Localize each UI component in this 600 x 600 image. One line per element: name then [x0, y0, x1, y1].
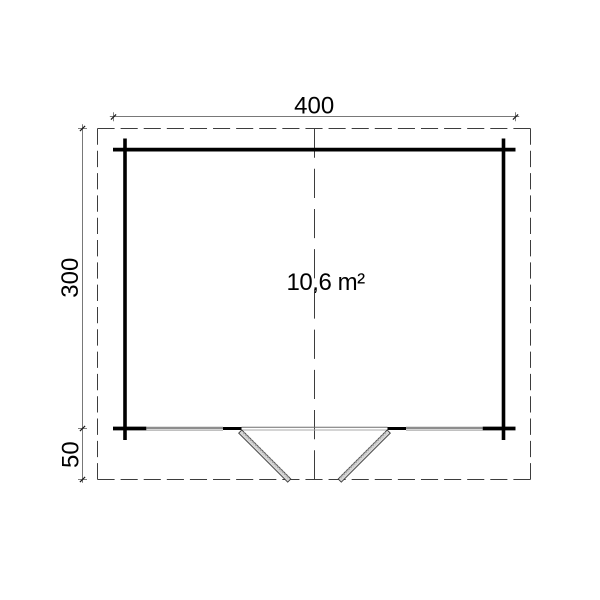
- svg-text:400: 400: [294, 93, 334, 120]
- svg-text:300: 300: [57, 258, 84, 298]
- svg-text:10,6 m²: 10,6 m²: [286, 269, 365, 296]
- svg-text:50: 50: [57, 441, 84, 468]
